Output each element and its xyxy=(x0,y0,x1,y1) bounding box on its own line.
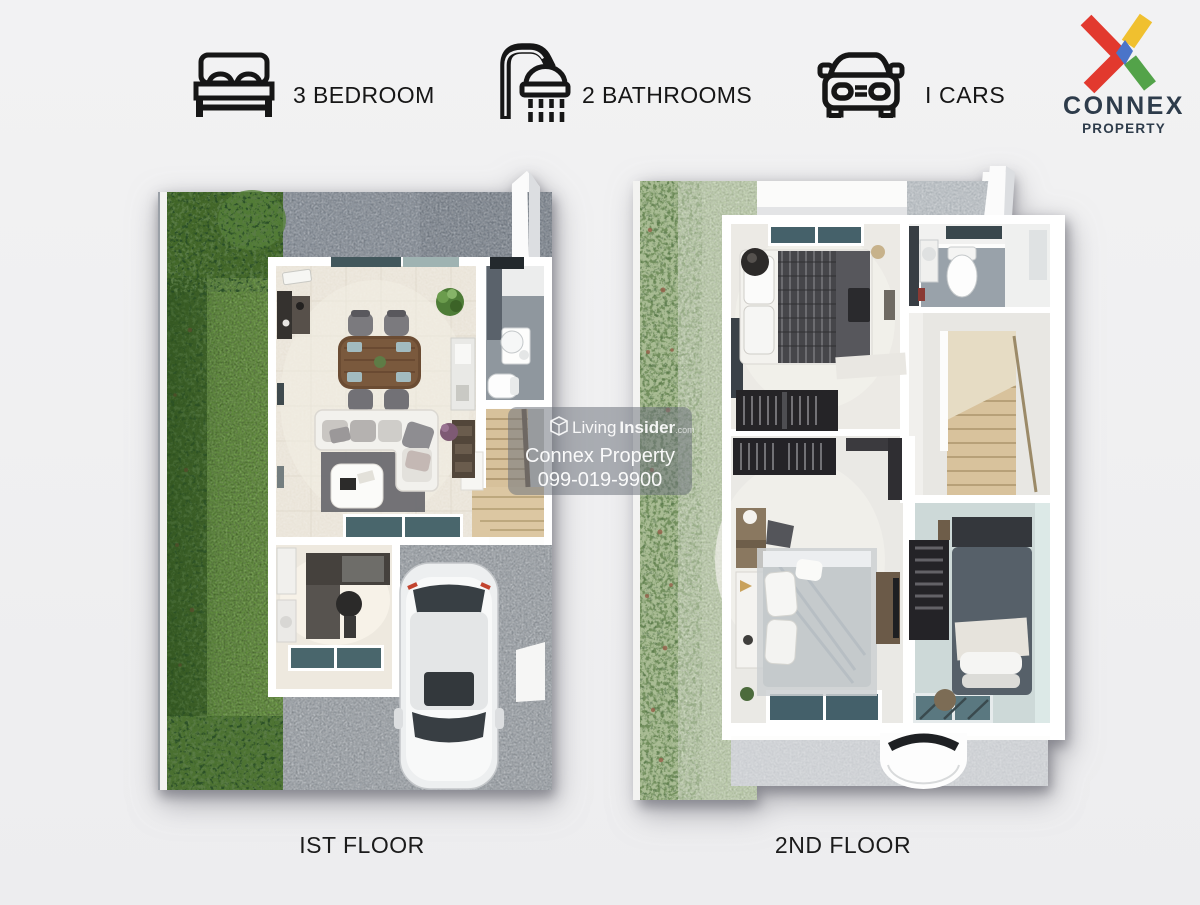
svg-text:2ND FLOOR: 2ND FLOOR xyxy=(775,832,911,858)
svg-text:2 BATHROOMS: 2 BATHROOMS xyxy=(582,82,752,108)
svg-text:IST FLOOR: IST FLOOR xyxy=(299,832,425,858)
svg-text:CONNEX: CONNEX xyxy=(1063,92,1185,120)
svg-text:3 BEDROOM: 3 BEDROOM xyxy=(293,82,435,108)
svg-text:Connex Property: Connex Property xyxy=(525,445,675,467)
svg-text:099-019-9900: 099-019-9900 xyxy=(538,469,663,491)
svg-text:I CARS: I CARS xyxy=(925,82,1005,108)
svg-text:PROPERTY: PROPERTY xyxy=(1082,121,1166,136)
